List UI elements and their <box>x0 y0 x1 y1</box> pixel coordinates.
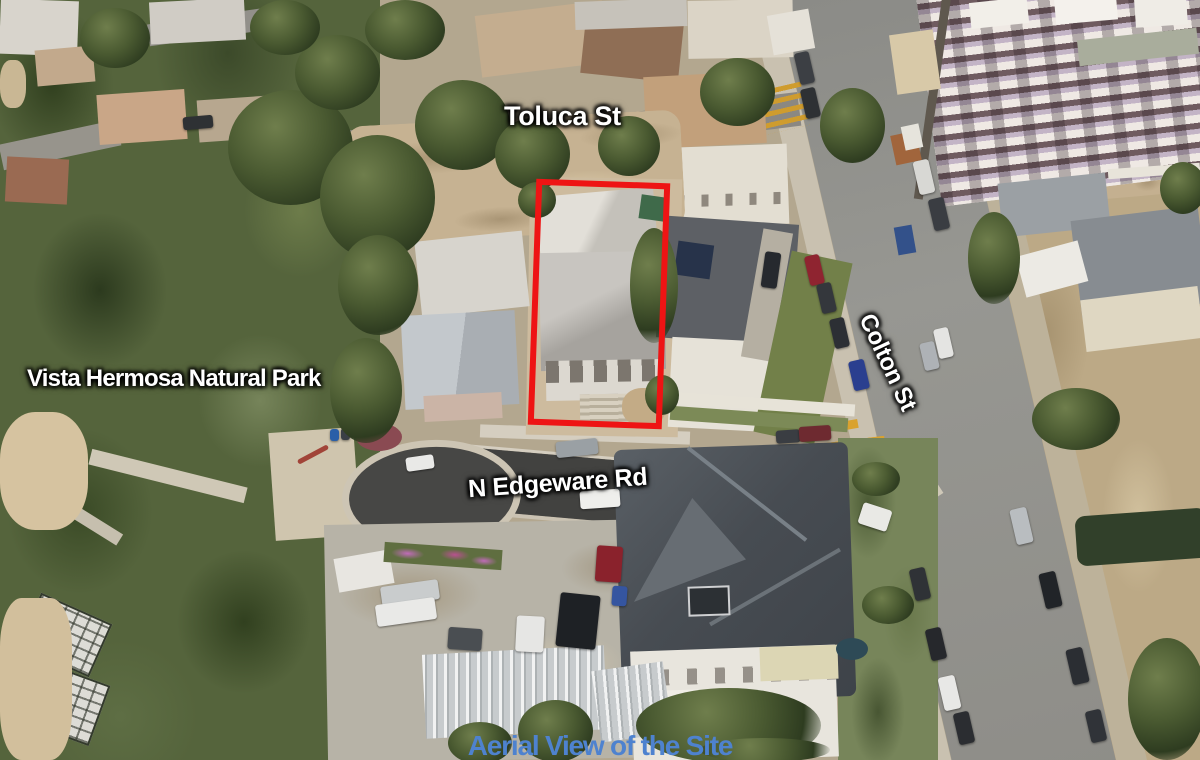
parked-car <box>799 425 832 442</box>
sand-patch <box>0 412 88 530</box>
house-roof <box>414 231 529 318</box>
rooftop-box <box>1134 0 1188 28</box>
tree <box>250 0 320 55</box>
parked-truck <box>555 438 598 458</box>
figure-caption: Aerial View of the Site <box>0 730 1200 760</box>
park-label: Vista Hermosa Natural Park <box>27 366 321 392</box>
hedge <box>1074 507 1200 566</box>
bush <box>1032 388 1120 450</box>
palm-tree <box>700 58 775 126</box>
bush <box>862 586 914 624</box>
house-roof <box>575 0 688 30</box>
parked-car <box>515 615 545 652</box>
parked-car <box>447 627 482 651</box>
building <box>889 29 941 95</box>
house-roof <box>149 0 246 44</box>
parked-car <box>611 586 627 607</box>
parked-car <box>776 429 801 444</box>
tree <box>968 212 1020 304</box>
pickup-truck <box>555 592 600 650</box>
awning <box>759 645 838 682</box>
street-label-toluca: Toluca St <box>504 102 621 132</box>
house-roof <box>5 156 69 204</box>
tree <box>820 88 885 163</box>
pool <box>836 638 868 660</box>
tree <box>330 338 402 443</box>
house-roof <box>96 89 187 145</box>
house-walls <box>423 392 502 422</box>
site-highlight-box <box>528 179 671 430</box>
trash-bin <box>330 429 339 441</box>
tree <box>338 235 418 335</box>
parked-car <box>595 545 623 583</box>
house-roof <box>767 9 815 56</box>
tree <box>365 0 445 60</box>
solar-panels <box>674 241 714 280</box>
aerial-photo: Toluca St Vista Hermosa Natural Park Col… <box>0 0 1200 760</box>
tree <box>80 8 150 68</box>
sand-patch <box>0 60 26 108</box>
tree <box>1160 162 1200 214</box>
parked-car <box>182 115 213 131</box>
dormer <box>687 585 730 616</box>
bush <box>852 462 900 496</box>
